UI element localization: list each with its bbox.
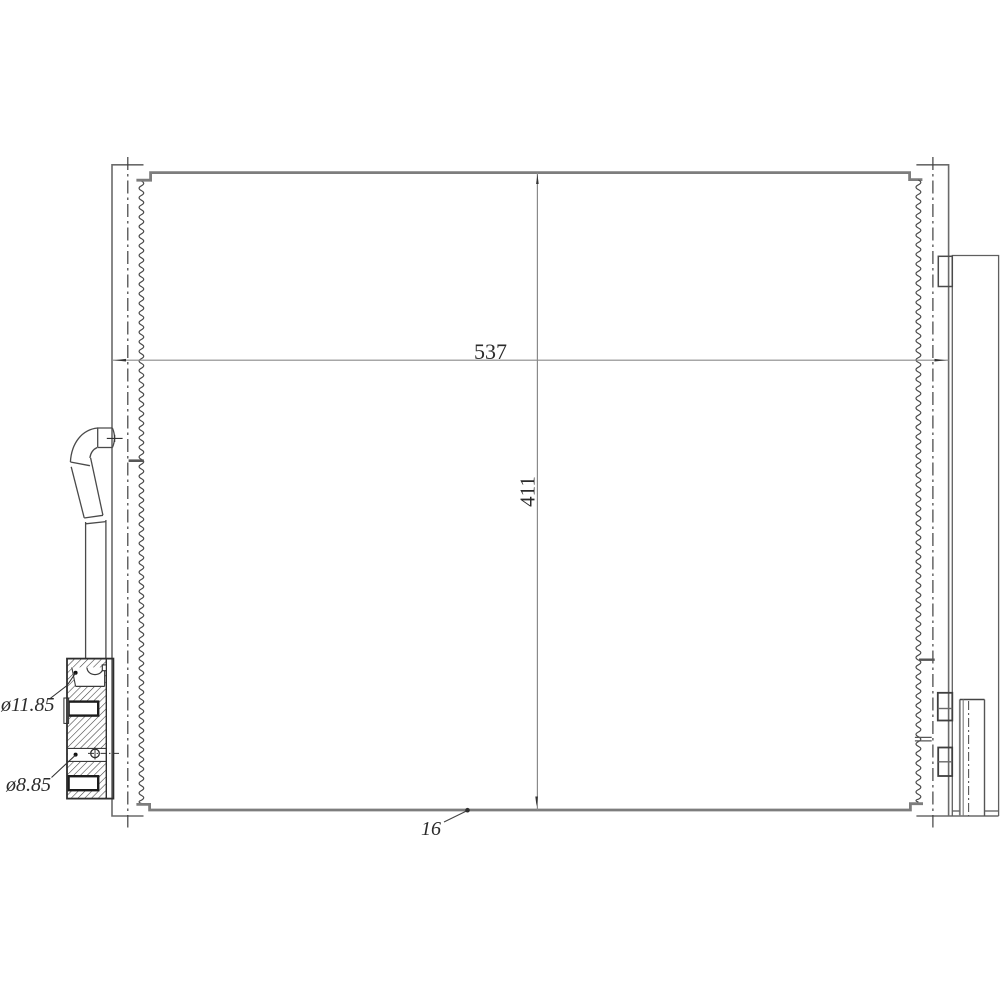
svg-text:411: 411 (516, 476, 540, 507)
svg-text:ø11.85: ø11.85 (0, 694, 55, 716)
svg-text:16: 16 (421, 818, 441, 840)
svg-text:ø8.85: ø8.85 (5, 774, 51, 796)
svg-text:537: 537 (474, 339, 507, 364)
